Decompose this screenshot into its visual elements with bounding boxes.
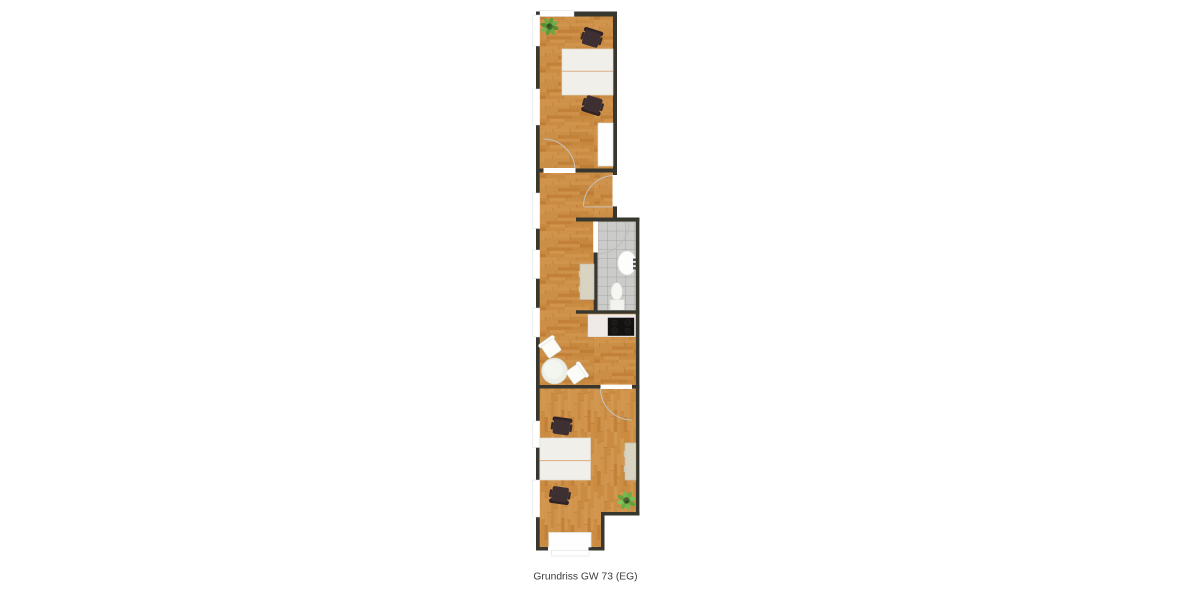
svg-text:Grundriss GW 73 (EG): Grundriss GW 73 (EG) xyxy=(533,572,637,583)
